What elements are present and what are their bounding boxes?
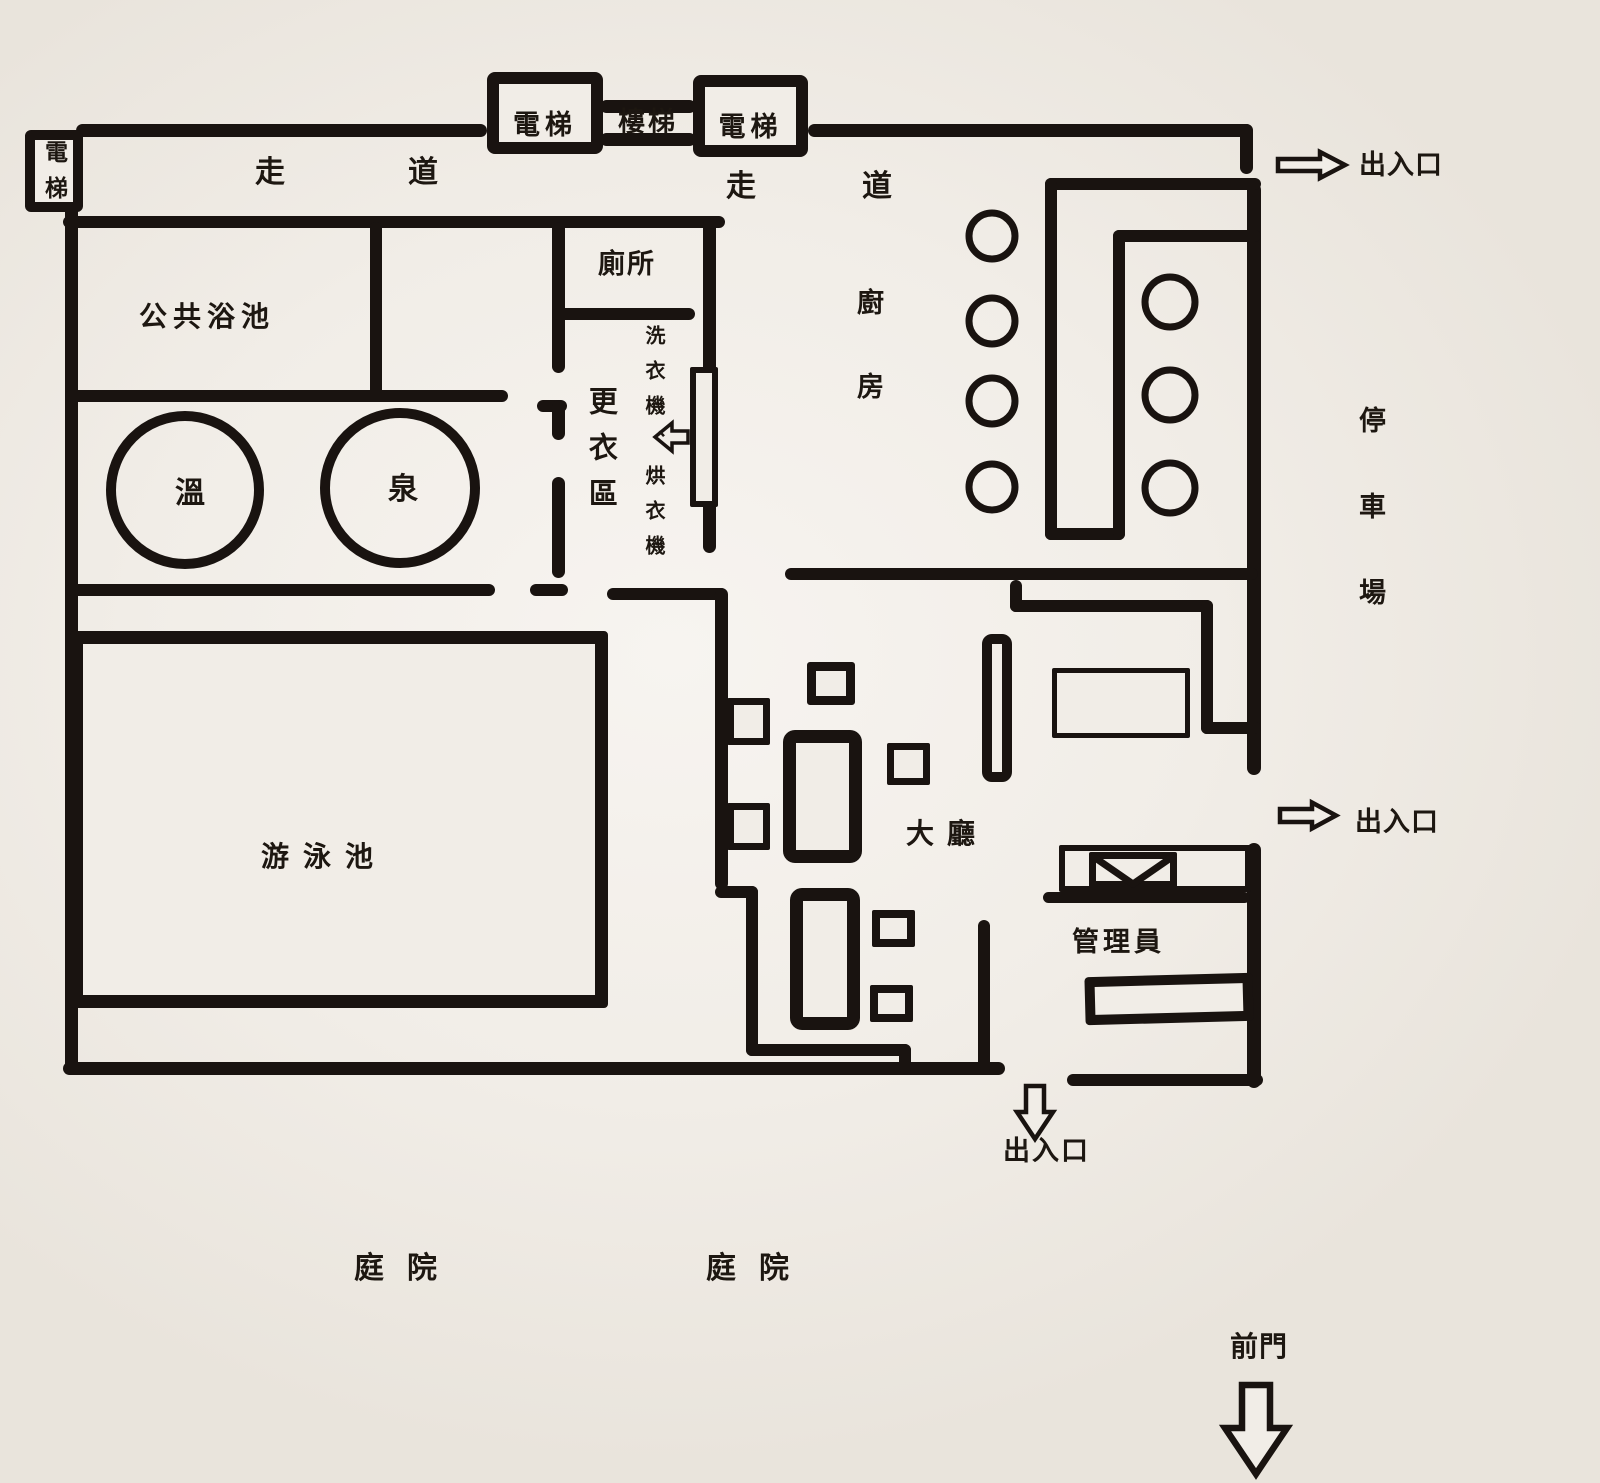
courtyard-east-label: 庭院 — [706, 1252, 812, 1287]
burner-icon — [969, 298, 1015, 344]
spring-pool-label: 泉 — [388, 473, 418, 508]
burner-icon — [1145, 277, 1195, 327]
burner-icon — [969, 378, 1015, 424]
toilet-label: 廁所 — [598, 249, 656, 280]
elevator-top-right-label: 電梯 — [693, 112, 808, 143]
parking-label: 停車場 — [1354, 406, 1385, 664]
exit-top-label: 出入口 — [1359, 150, 1443, 181]
elevator-west-label: 電梯 — [41, 140, 67, 212]
arrow-down-icon — [1017, 1086, 1053, 1139]
laundry-label: 洗衣機、烘衣機 — [641, 325, 664, 570]
arrow-right-icon — [1280, 803, 1336, 829]
burner-icon — [969, 213, 1015, 259]
arrow-right-icon — [1278, 152, 1345, 178]
stairs-label: 樓梯 — [600, 107, 696, 138]
arrow-down-icon — [1225, 1385, 1287, 1474]
hot-pool-label: 溫 — [175, 477, 205, 512]
corridor-east-label: 走道 — [726, 170, 998, 205]
burner-icon — [1145, 463, 1195, 513]
front-gate-label: 前門 — [1230, 1331, 1288, 1363]
floor-plan: 電梯 電梯 樓梯 電梯 走道 走道 公共浴池 廁所 溫 泉 更衣區 洗衣機、烘衣… — [0, 0, 1600, 1483]
kitchen-label: 廚房 — [852, 288, 883, 456]
pool-label: 游泳池 — [261, 841, 387, 873]
envelope-icon — [1091, 855, 1175, 884]
burner-icon — [1145, 370, 1195, 420]
public-bath-label: 公共浴池 — [139, 301, 275, 333]
burner-icon — [969, 464, 1015, 510]
lobby-label: 大廳 — [906, 818, 988, 850]
manager-label: 管理員 — [1072, 927, 1165, 958]
courtyard-west-label: 庭院 — [354, 1252, 460, 1287]
exit-right-label: 出入口 — [1355, 807, 1439, 838]
exit-bottom-label: 出入口 — [1003, 1136, 1090, 1167]
corridor-west-label: 走道 — [255, 156, 561, 191]
elevator-top-left-label: 電梯 — [487, 110, 603, 141]
changing-area-label: 更衣區 — [583, 386, 616, 524]
